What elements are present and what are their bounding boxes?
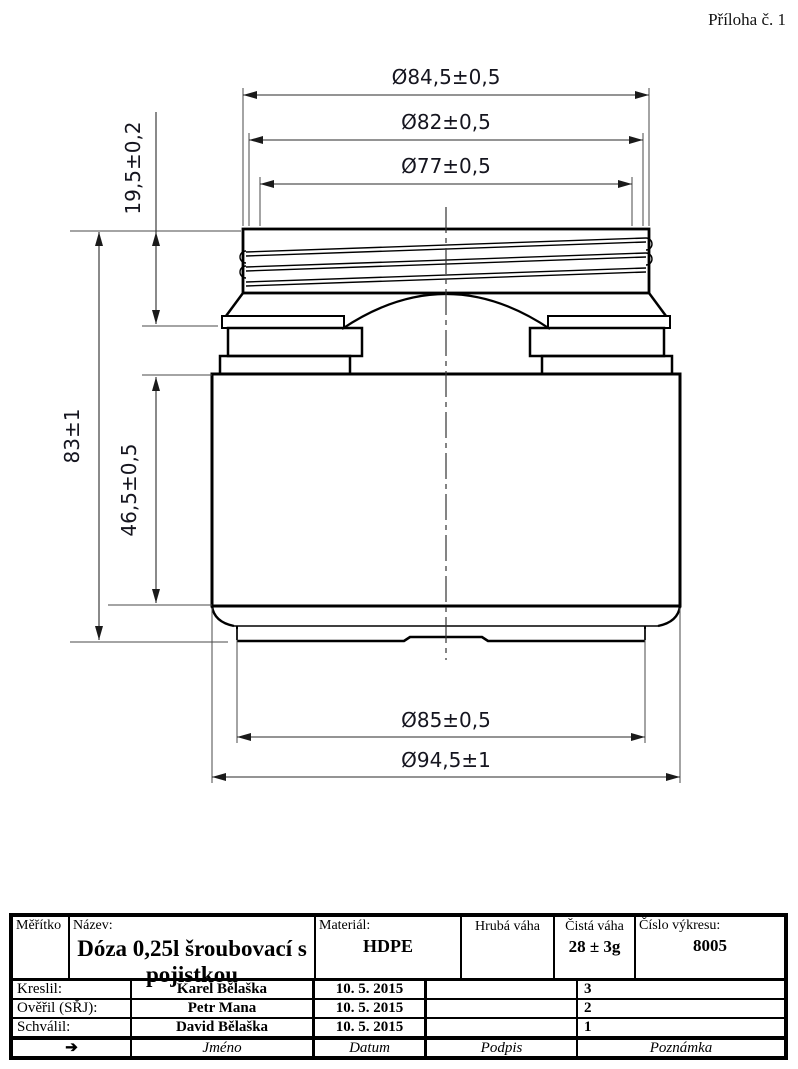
right-lock-step <box>542 356 672 374</box>
net-weight-value: 28 ± 3g <box>555 937 634 957</box>
left-lock-step <box>220 356 350 374</box>
row-name: Petr Mana <box>132 1000 315 1017</box>
drawing-number-value: 8005 <box>636 936 784 956</box>
title-block: Měřítko Název: Dóza 0,25l šroubovací s p… <box>9 913 788 1060</box>
right-lock-tab <box>530 328 664 356</box>
body <box>212 374 680 606</box>
net-weight-label: Čistá váha <box>555 917 634 936</box>
drawing-title: Dóza 0,25l šroubovací s pojistkou <box>76 936 308 988</box>
title-block-header-row: Měřítko Název: Dóza 0,25l šroubovací s p… <box>13 917 784 981</box>
row-note: 2 <box>578 1000 784 1017</box>
footer-signature-label: Podpis <box>427 1040 578 1057</box>
table-row: Ověřil (SŘJ): Petr Mana 10. 5. 2015 2 <box>13 1000 784 1019</box>
row-date: 10. 5. 2015 <box>315 1000 427 1017</box>
material-value: HDPE <box>316 936 460 957</box>
dim-thread-diameter: Ø82±0,5 <box>401 110 491 134</box>
material-label: Materiál: <box>316 917 460 935</box>
dim-base-ring-diameter: Ø85±0,5 <box>401 708 491 732</box>
row-name: David Bělaška <box>132 1019 315 1036</box>
left-flange <box>222 316 344 328</box>
footer-note-label: Poznámka <box>578 1040 784 1057</box>
net-weight-cell: Čistá váha 28 ± 3g <box>555 917 636 978</box>
title-block-footer-row: ➔ Jméno Datum Podpis Poznámka <box>13 1040 784 1057</box>
gross-weight-label: Hrubá váha <box>462 917 553 936</box>
base-left-corner <box>212 606 234 626</box>
footer-date-label: Datum <box>315 1040 427 1057</box>
base-bottom <box>237 637 645 641</box>
gross-weight-cell: Hrubá váha <box>462 917 555 978</box>
name-cell: Název: Dóza 0,25l šroubovací s pojistkou <box>70 917 316 978</box>
dim-neck-outer-diameter: Ø84,5±0,5 <box>392 65 501 89</box>
dim-body-diameter: Ø94,5±1 <box>401 748 491 772</box>
right-shoulder-slope <box>649 293 666 316</box>
left-shoulder-slope <box>226 293 243 316</box>
material-cell: Materiál: HDPE <box>316 917 462 978</box>
table-row: Schválil: David Bělaška 10. 5. 2015 1 <box>13 1019 784 1040</box>
right-flange <box>548 316 670 328</box>
dim-total-height: 83±1 <box>60 409 84 464</box>
footer-name-label: Jméno <box>132 1040 315 1057</box>
name-label: Název: <box>70 917 314 935</box>
dim-body-height: 46,5±0,5 <box>117 443 141 536</box>
base-right-corner <box>658 606 680 626</box>
dimension-lines <box>99 95 680 777</box>
row-note: 3 <box>578 981 784 998</box>
arrow-icon: ➔ <box>13 1040 132 1057</box>
row-note: 1 <box>578 1019 784 1036</box>
dim-neck-height: 19,5±0,2 <box>121 121 145 214</box>
row-role: Ověřil (SŘJ): <box>13 1000 132 1017</box>
scale-label: Měřítko <box>13 917 68 935</box>
row-role: Schválil: <box>13 1019 132 1036</box>
left-lock-tab <box>228 328 362 356</box>
row-signature <box>427 981 578 998</box>
drawing-number-cell: Číslo výkresu: 8005 <box>636 917 784 978</box>
row-signature <box>427 1019 578 1036</box>
drawing-number-label: Číslo výkresu: <box>636 917 784 935</box>
row-date: 10. 5. 2015 <box>315 981 427 998</box>
row-signature <box>427 1000 578 1017</box>
dimension-arrows <box>95 91 680 781</box>
extension-lines <box>70 88 680 783</box>
technical-drawing: Ø84,5±0,5 Ø82±0,5 Ø77±0,5 19,5±0,2 83±1 … <box>0 0 798 905</box>
scale-cell: Měřítko <box>13 917 70 978</box>
dim-inner-diameter: Ø77±0,5 <box>401 154 491 178</box>
row-date: 10. 5. 2015 <box>315 1019 427 1036</box>
